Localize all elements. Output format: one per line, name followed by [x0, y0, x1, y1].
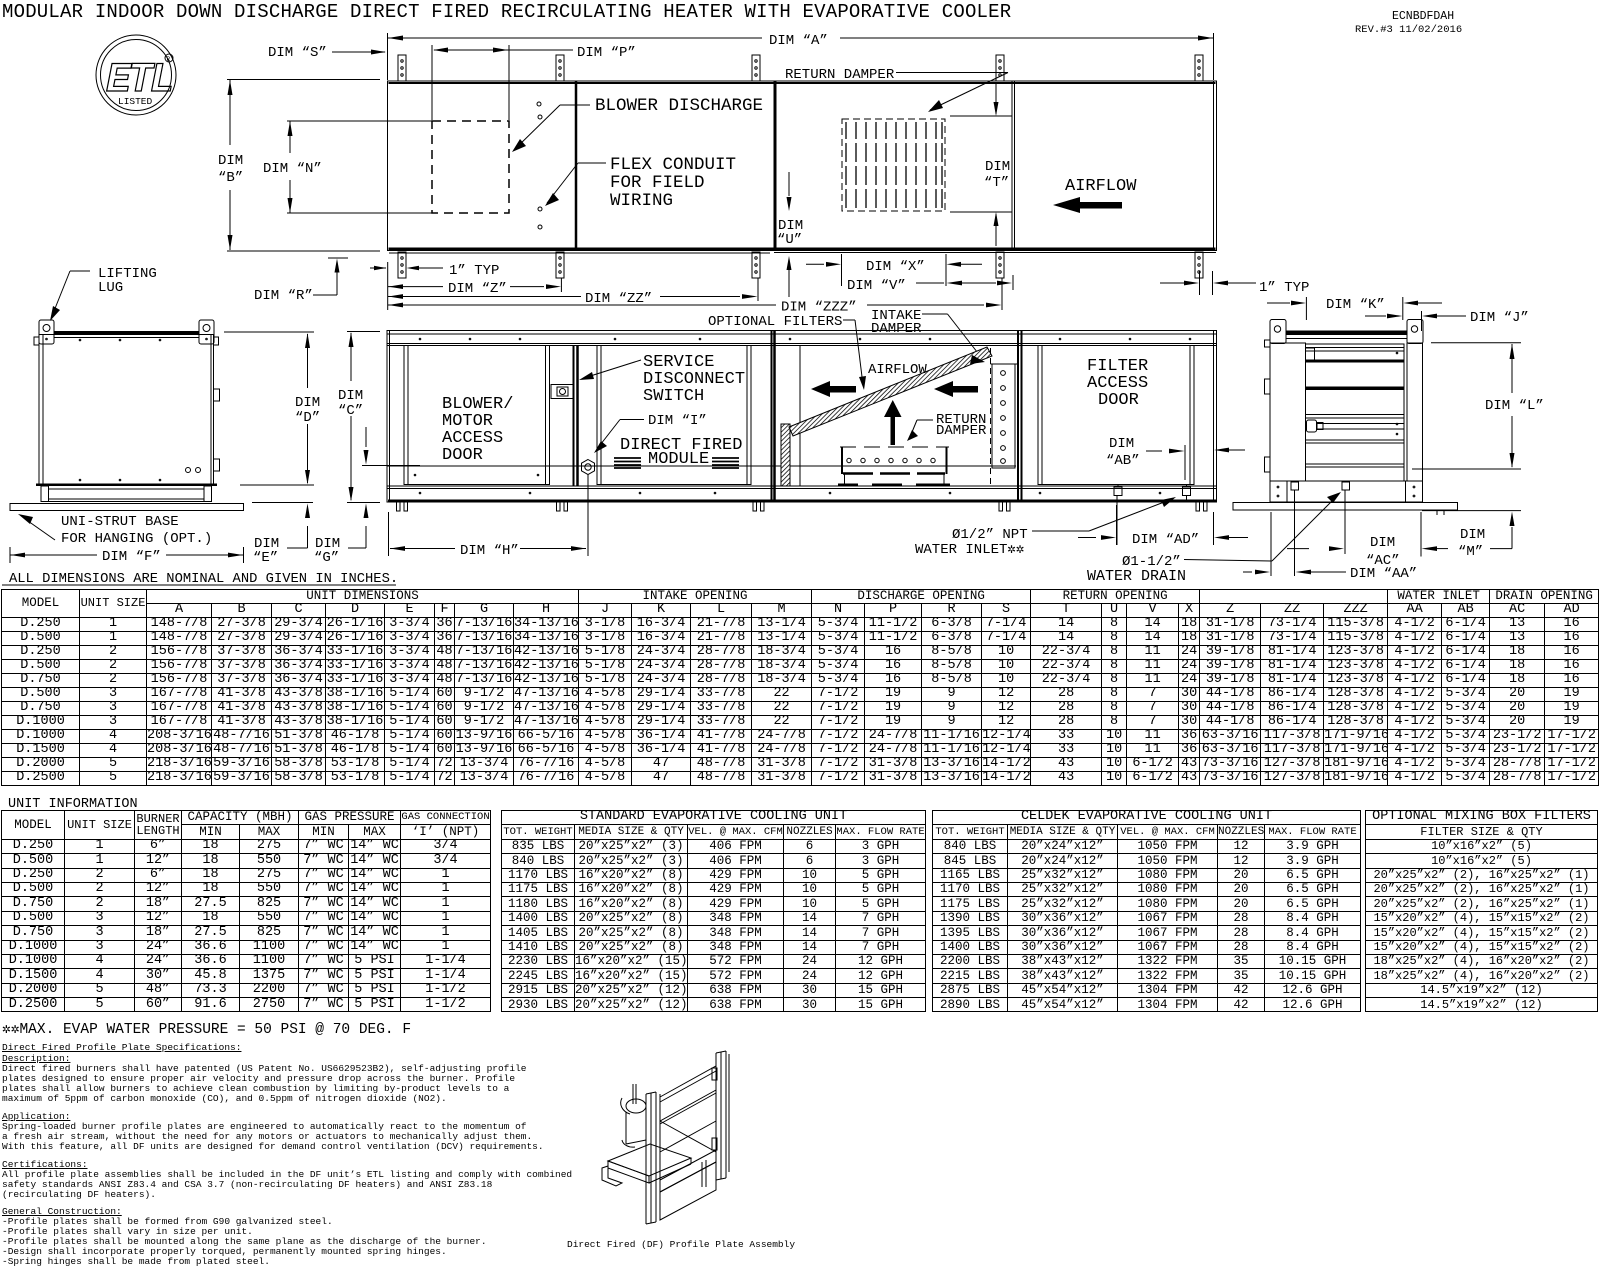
svg-text:AIRFLOW: AIRFLOW — [868, 362, 927, 378]
svg-text:DAMPER: DAMPER — [871, 321, 922, 337]
svg-text:DIM “P”: DIM “P” — [577, 45, 636, 61]
svg-text:AIRFLOW: AIRFLOW — [1065, 177, 1137, 196]
svg-text:DIM “N”: DIM “N” — [263, 161, 322, 177]
svg-text:LISTED: LISTED — [118, 96, 153, 107]
svg-text:DOOR: DOOR — [442, 446, 483, 465]
svg-text:DIM: DIM — [295, 395, 320, 411]
svg-text:REV.#3 11/02/2016: REV.#3 11/02/2016 — [1355, 24, 1462, 36]
svg-text:FLEX CONDUIT: FLEX CONDUIT — [610, 155, 736, 175]
svg-text:“T”: “T” — [984, 175, 1009, 191]
svg-text:DIM: DIM — [1460, 527, 1485, 543]
svg-text:FOR FIELD: FOR FIELD — [610, 173, 705, 193]
svg-text:“B”: “B” — [218, 170, 243, 186]
svg-text:Direct Fired (DF) Profile Plat: Direct Fired (DF) Profile Plate Assembly — [567, 1239, 795, 1250]
svg-text:“C”: “C” — [338, 403, 363, 419]
svg-text:Ø1/2” NPT: Ø1/2” NPT — [952, 527, 1028, 543]
svg-text:DIM “K”: DIM “K” — [1326, 297, 1385, 313]
svg-text:DIM “Z”: DIM “Z” — [448, 281, 507, 297]
svg-text:OPTIONAL FILTERS: OPTIONAL FILTERS — [708, 314, 842, 330]
svg-text:DIM “X”: DIM “X” — [866, 259, 925, 275]
svg-text:MODULAR INDOOR DOWN DISCHARGE: MODULAR INDOOR DOWN DISCHARGE DIRECT FIR… — [2, 1, 1011, 23]
svg-text:“U”: “U” — [777, 232, 802, 248]
svg-text:RETURN DAMPER: RETURN DAMPER — [785, 67, 895, 83]
svg-text:DIM: DIM — [1370, 535, 1395, 551]
svg-text:DIM “AD”: DIM “AD” — [1132, 532, 1199, 548]
svg-text:FOR HANGING (OPT.): FOR HANGING (OPT.) — [61, 531, 212, 547]
svg-text:DIM: DIM — [338, 388, 363, 404]
svg-text:DOOR: DOOR — [1098, 391, 1139, 410]
svg-text:UNI-STRUT BASE: UNI-STRUT BASE — [61, 514, 179, 530]
svg-text:“G”: “G” — [314, 550, 339, 566]
svg-text:BLOWER DISCHARGE: BLOWER DISCHARGE — [595, 96, 763, 116]
svg-text:WATER DRAIN: WATER DRAIN — [1087, 568, 1186, 585]
svg-text:DIM “S”: DIM “S” — [268, 45, 327, 61]
svg-text:“E”: “E” — [253, 550, 278, 566]
svg-text:DAMPER: DAMPER — [936, 423, 987, 439]
svg-text:DIM: DIM — [218, 153, 243, 169]
svg-text:R: R — [167, 56, 171, 63]
svg-text:1” TYP: 1” TYP — [1259, 280, 1309, 296]
svg-text:DIM: DIM — [985, 159, 1010, 175]
svg-text:DIM “I”: DIM “I” — [648, 413, 707, 429]
svg-text:“M”: “M” — [1458, 544, 1483, 560]
svg-text:“AB”: “AB” — [1106, 453, 1140, 469]
svg-text:1” TYP: 1” TYP — [449, 263, 499, 279]
svg-text:MODULE: MODULE — [648, 450, 709, 469]
svg-text:WATER INLET✲✲: WATER INLET✲✲ — [915, 542, 1024, 558]
svg-text:DIM “V”: DIM “V” — [847, 278, 906, 294]
svg-text:DIM “H”: DIM “H” — [460, 543, 519, 559]
svg-text:ECNBDFDAH: ECNBDFDAH — [1392, 10, 1454, 23]
svg-text:DIM “F”: DIM “F” — [102, 549, 161, 565]
svg-text:LUG: LUG — [98, 280, 123, 296]
svg-text:DIM: DIM — [1109, 436, 1134, 452]
svg-text:DIM “J”: DIM “J” — [1470, 310, 1529, 326]
svg-text:DIM “A”: DIM “A” — [769, 33, 828, 49]
svg-text:“D”: “D” — [295, 410, 320, 426]
svg-text:DIM “AA”: DIM “AA” — [1350, 566, 1417, 582]
svg-text:WIRING: WIRING — [610, 191, 673, 211]
svg-text:SWITCH: SWITCH — [643, 387, 704, 406]
svg-text:DIM “R”: DIM “R” — [254, 288, 313, 304]
svg-text:DIM “L”: DIM “L” — [1485, 398, 1544, 414]
